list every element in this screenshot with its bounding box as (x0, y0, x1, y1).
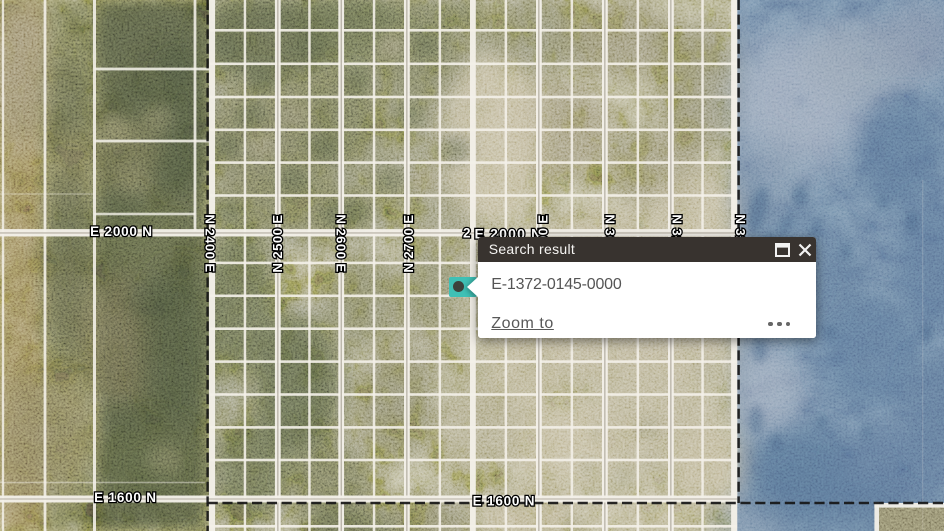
svg-text:N 2500 E: N 2500 E (270, 214, 285, 272)
svg-text:N 2400 E: N 2400 E (203, 214, 218, 272)
svg-text:2: 2 (463, 226, 471, 241)
svg-text:E 2000 N: E 2000 N (90, 224, 153, 239)
svg-text:N 2700 E: N 2700 E (401, 214, 416, 272)
svg-text:E 1600 N: E 1600 N (473, 493, 536, 508)
svg-text:N 2600 E: N 2600 E (334, 214, 349, 272)
svg-text:E 1600 N: E 1600 N (94, 490, 157, 505)
